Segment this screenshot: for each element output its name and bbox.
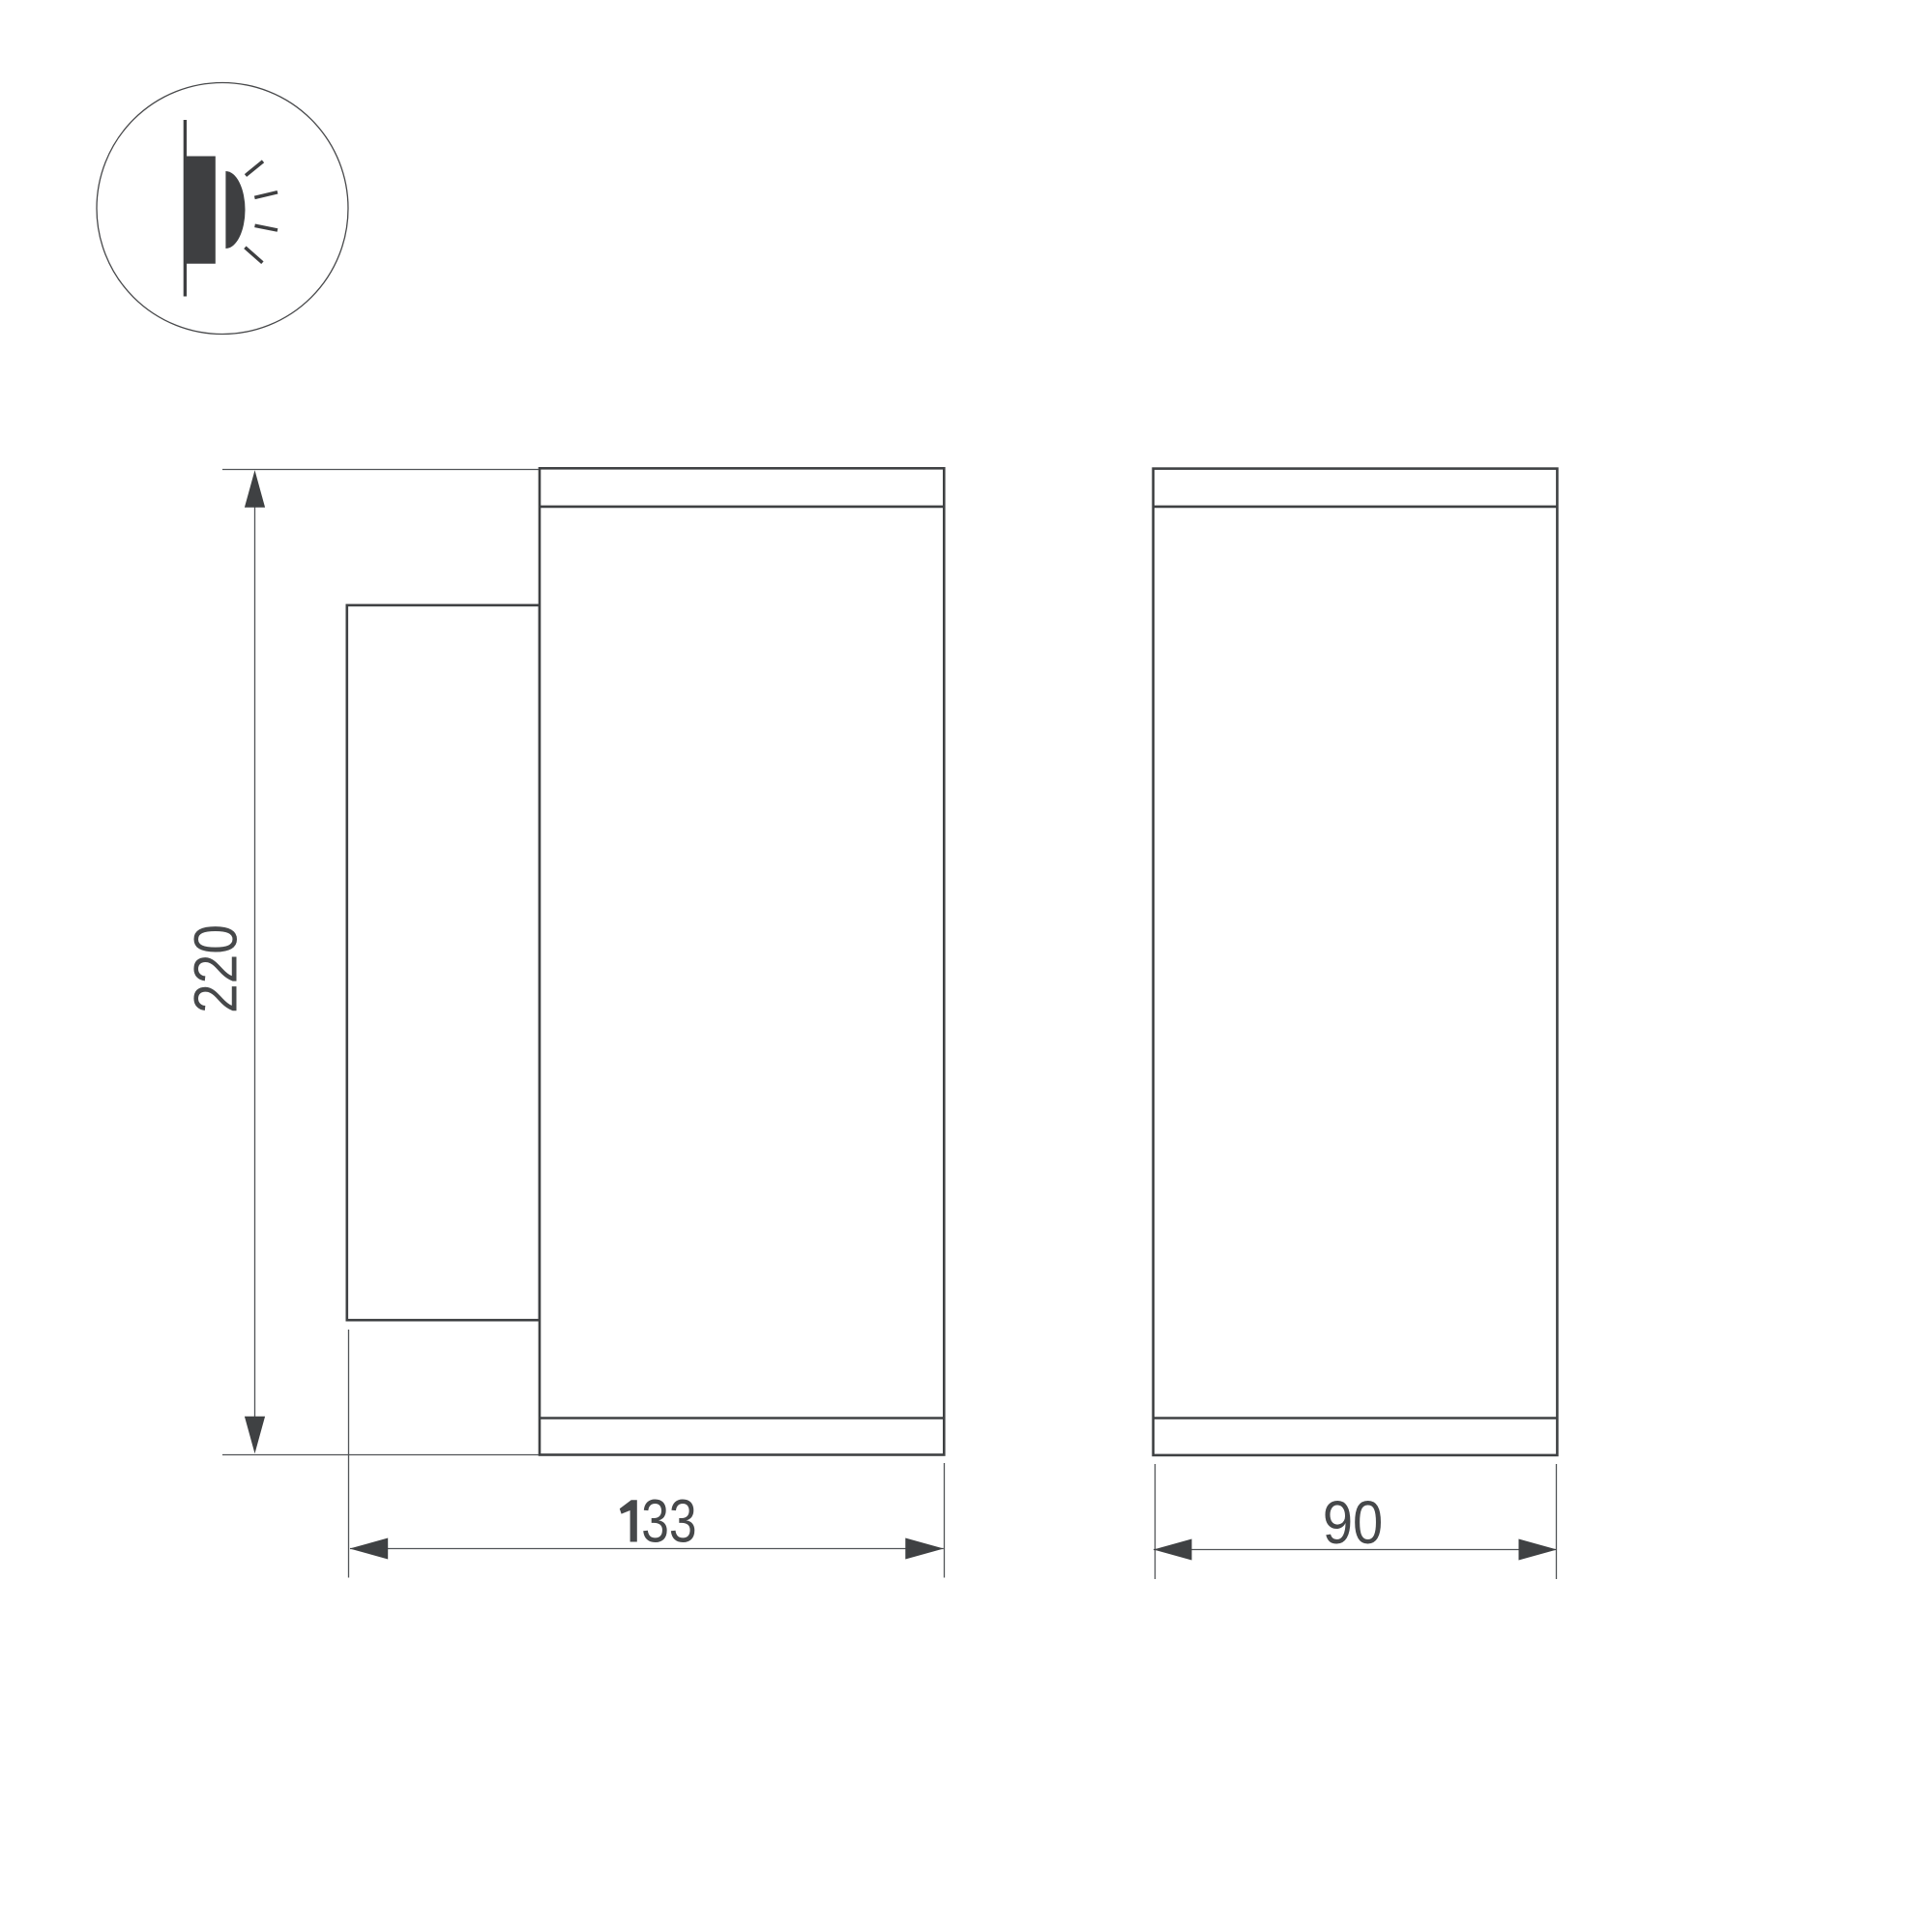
- svg-text:90: 90: [1323, 1489, 1383, 1557]
- svg-text:220: 220: [183, 924, 250, 1013]
- svg-text:33: 33: [641, 1488, 696, 1556]
